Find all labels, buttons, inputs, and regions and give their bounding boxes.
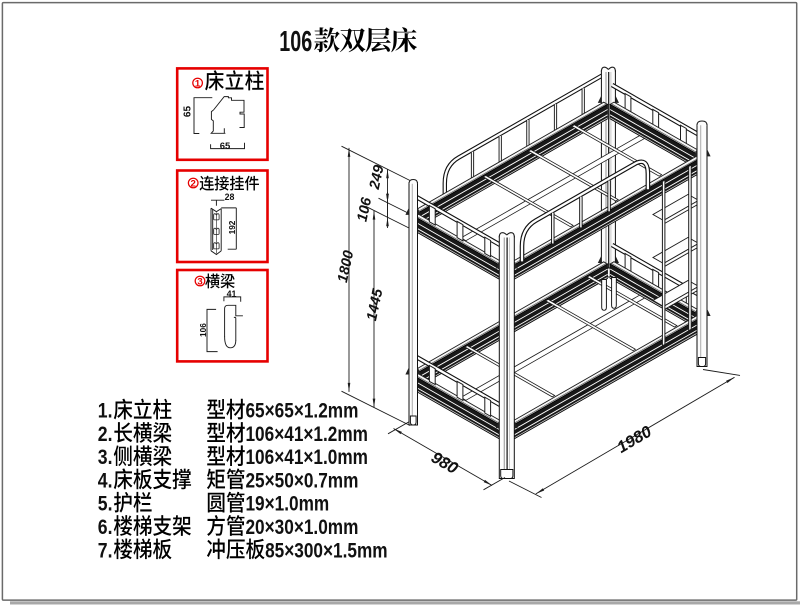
svg-text:106×41×1.0mm: 106×41×1.0mm (246, 447, 368, 470)
svg-text:28: 28 (225, 192, 235, 202)
svg-text:106: 106 (279, 26, 312, 58)
svg-text:85×300×1.5mm: 85×300×1.5mm (265, 540, 387, 563)
svg-text:65×65×1.2mm: 65×65×1.2mm (246, 400, 359, 423)
svg-text:6.: 6. (98, 515, 113, 539)
svg-text:19×1.0mm: 19×1.0mm (246, 493, 330, 516)
svg-text:3: 3 (197, 276, 202, 287)
svg-text:7.: 7. (98, 539, 113, 563)
svg-text:65: 65 (220, 141, 231, 152)
svg-text:65: 65 (182, 106, 193, 118)
svg-text:106: 106 (198, 323, 208, 337)
svg-text:192: 192 (227, 220, 237, 234)
svg-text:20×30×1.0mm: 20×30×1.0mm (246, 517, 359, 540)
svg-text:2: 2 (191, 178, 196, 189)
svg-text:106×41×1.2mm: 106×41×1.2mm (246, 423, 368, 446)
svg-text:25×50×0.7mm: 25×50×0.7mm (246, 470, 359, 493)
svg-text:2.: 2. (98, 422, 113, 446)
svg-text:5.: 5. (98, 492, 113, 516)
svg-text:4.: 4. (98, 469, 113, 493)
svg-text:1: 1 (195, 78, 201, 89)
svg-text:3.: 3. (98, 446, 113, 470)
svg-text:1.: 1. (98, 399, 113, 423)
svg-text:41: 41 (227, 289, 237, 299)
